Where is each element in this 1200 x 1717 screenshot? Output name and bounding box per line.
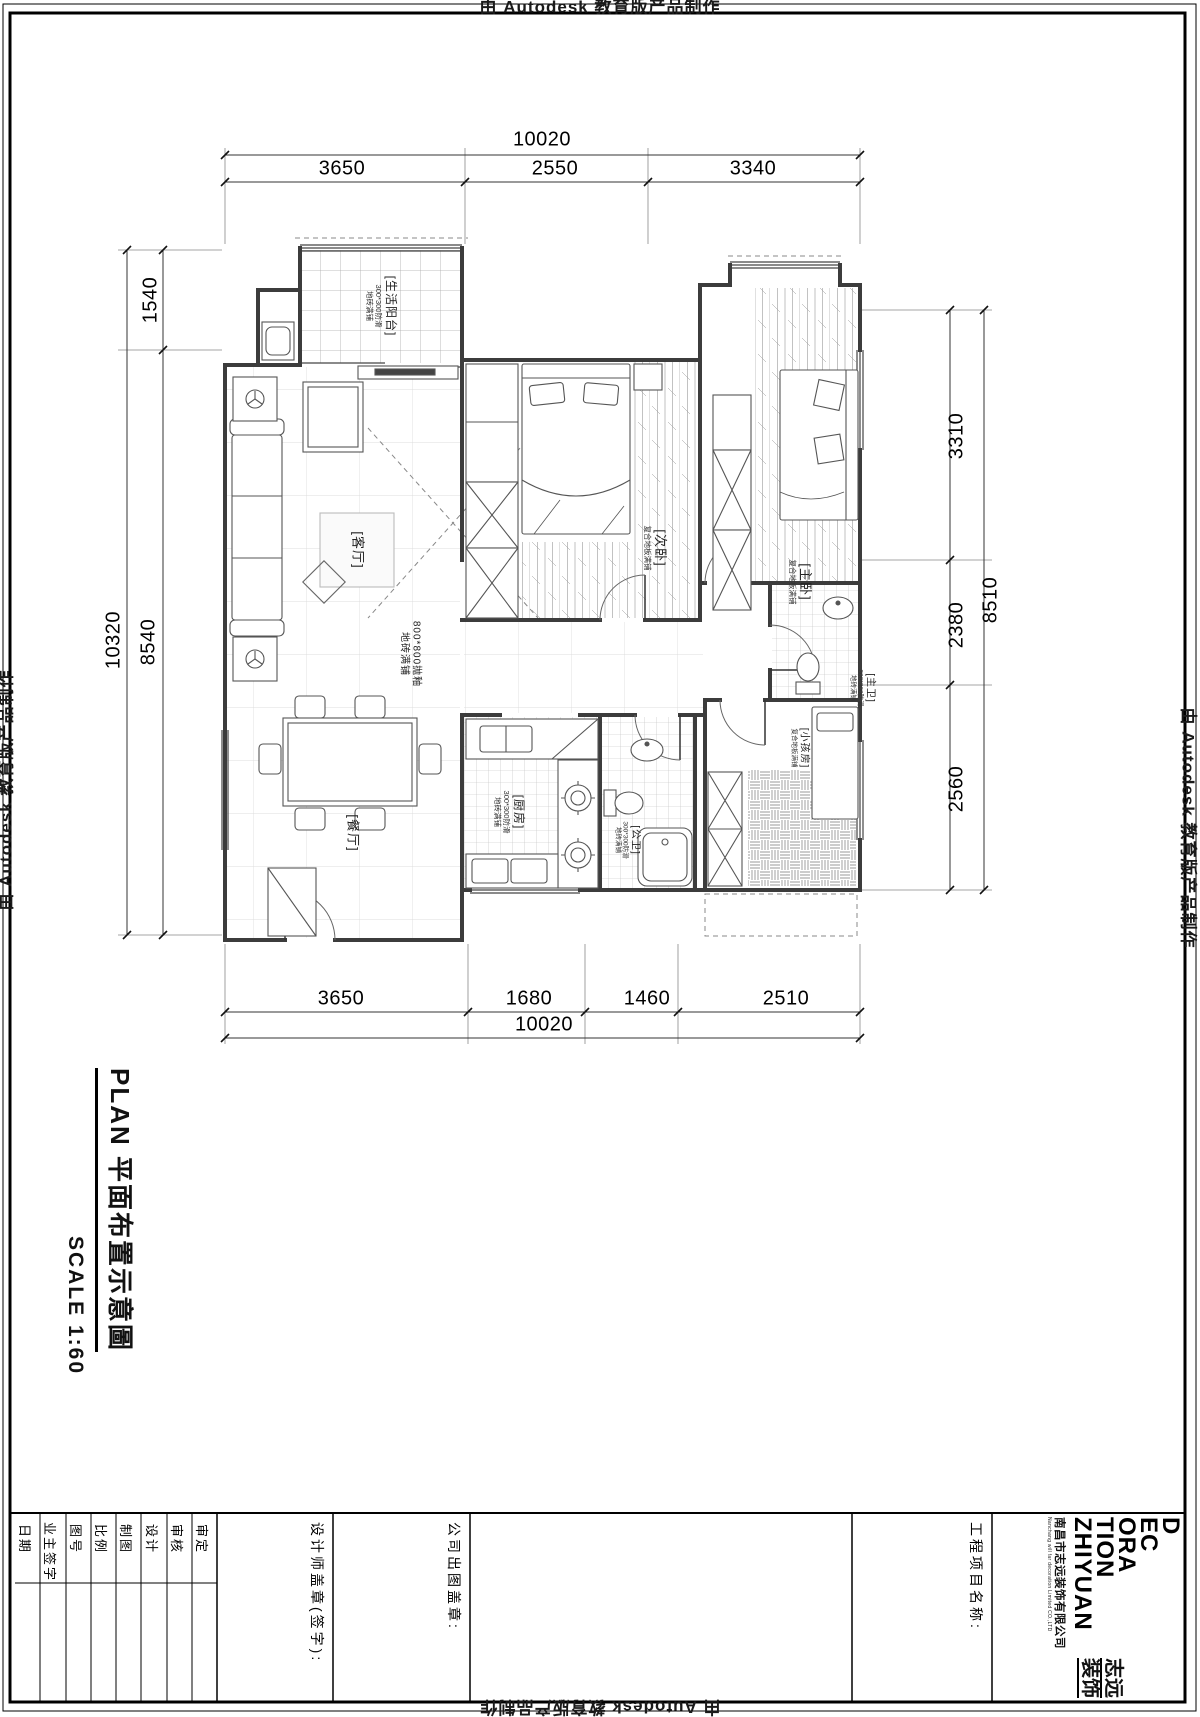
watermark-left: 由 Autodesk 教育版产品制作 — [0, 670, 17, 911]
sheet-title: PLAN 平面布置示意圖 SCALE 1:60 — [63, 1068, 140, 1388]
watermark-top: 由 Autodesk 教育版产品制作 — [480, 0, 721, 18]
field-ratio: 比例 — [92, 1524, 111, 1554]
dining-cabinet — [268, 868, 316, 936]
room-label-bed2: [次卧] 复合地板满铺 — [643, 526, 667, 571]
dim-top-seg3: 3340 — [730, 158, 777, 181]
dim-left-seg1: 1540 — [140, 277, 163, 324]
room-name: [厨房] — [511, 795, 525, 830]
watermark-right: 由 Autodesk 教育版产品制作 — [1178, 708, 1200, 949]
room-label-pubbath: [公卫] 300*300防滑 地砖满铺 — [613, 821, 640, 858]
watermark-bottom: 由 Autodesk 教育版产品制作 — [480, 1697, 721, 1717]
room-name: [小孩房] — [798, 728, 810, 769]
room-label-master: [主卧] 复合地板满铺 — [788, 560, 812, 605]
project-name-label: 工程项目名称: — [966, 1522, 986, 1631]
floor-spec: 地砖满铺 — [613, 827, 621, 853]
designer-stamp-label: 设计师盖章(签字): — [307, 1522, 327, 1663]
bed2 — [522, 364, 630, 534]
floor-spec: 300*300防滑 — [374, 285, 383, 328]
dim-bottom-overall: 10020 — [515, 1014, 573, 1037]
coffee-table — [303, 382, 363, 452]
room-label-kids: [小孩房] 复合地板满铺 — [790, 728, 809, 769]
logo-cn: 志远 装饰 — [1077, 1658, 1123, 1698]
floor-spec: 地砖满铺 — [365, 291, 374, 321]
dim-bottom-seg2: 1680 — [506, 988, 553, 1011]
dim-bottom-seg1: 3650 — [318, 988, 365, 1011]
floor-spec: 地砖满铺 — [399, 632, 411, 676]
dim-right-seg2: 2380 — [946, 602, 969, 649]
kids-bed — [812, 707, 858, 819]
dim-right-seg1: 3310 — [946, 413, 969, 460]
sofa — [230, 419, 284, 636]
hall-floor-note: 800*800抛釉 地砖满铺 — [399, 621, 422, 687]
dim-top-seg2: 2550 — [532, 158, 579, 181]
field-drawing-no: 图号 — [67, 1524, 86, 1554]
bed2-wardrobe — [466, 364, 518, 618]
room-name: [次卧] — [652, 529, 667, 566]
room-name: [公卫] — [629, 825, 641, 855]
floor-spec: 300*300防滑 — [856, 669, 864, 706]
logo-line: ZHIYUAN — [1071, 1517, 1093, 1631]
room-name: [主卫] — [864, 673, 876, 703]
room-label-dining: [餐厅] — [345, 814, 360, 851]
dim-left-seg2: 8540 — [138, 619, 161, 666]
floor-patterns — [227, 250, 858, 938]
floor-spec: 300*300防滑 — [621, 821, 629, 858]
balcony-basin — [262, 322, 294, 360]
company-logo: D EC ORA TION ZHIYUAN 志远 装饰 南昌市志远装饰有限公司 … — [992, 1513, 1183, 1702]
logo-cn-line: 装饰 — [1077, 1658, 1100, 1698]
dim-bottom-seg4: 2510 — [763, 988, 810, 1011]
company-stamp-label: 公司出图盖章: — [444, 1522, 464, 1631]
room-name: [生活阳台] — [383, 276, 397, 337]
room-name: [客厅] — [350, 531, 365, 568]
logo-line: D — [1159, 1517, 1181, 1631]
floor-spec: 复合地板满铺 — [643, 526, 652, 571]
logo-line: EC — [1137, 1517, 1159, 1631]
field-drafted: 制图 — [117, 1524, 136, 1554]
drawing-sheet: 10020 3650 2550 3340 3650 1680 1460 2510… — [0, 0, 1200, 1717]
dim-left-overall: 10320 — [103, 611, 126, 669]
dim-top-seg1: 3650 — [319, 158, 366, 181]
floor-spec: 800*800抛釉 — [410, 621, 422, 687]
floor-spec: 地砖满铺 — [493, 797, 502, 827]
logo-line: TION — [1093, 1517, 1115, 1631]
tv-cabinet — [358, 366, 458, 379]
logo-en: D EC ORA TION ZHIYUAN — [1071, 1517, 1181, 1631]
floor-spec: 300*300防滑 — [502, 791, 511, 834]
floor-spec: 复合地板满铺 — [788, 560, 797, 605]
dim-right-overall: 8510 — [980, 577, 1003, 624]
master-bed — [780, 370, 858, 520]
master-wardrobe — [713, 395, 751, 610]
room-label-balcony: [生活阳台] 300*300防滑 地砖满铺 — [365, 276, 397, 337]
field-checked: 审核 — [168, 1524, 187, 1554]
company-name-cn: 南昌市志远装饰有限公司 — [1052, 1517, 1068, 1698]
floor-spec: 复合地板满铺 — [790, 729, 798, 768]
room-label-living: [客厅] — [350, 531, 365, 568]
room-name: [主卧] — [797, 563, 812, 600]
room-name: [餐厅] — [345, 814, 360, 851]
field-owner-sign: 业主签字 — [41, 1522, 60, 1582]
sheet-title-text: PLAN 平面布置示意圖 — [95, 1068, 140, 1352]
room-label-kitchen: [厨房] 300*300防滑 地砖满铺 — [493, 791, 525, 834]
company-name-en: Nanchang will far decoration Limited CO.… — [1046, 1517, 1052, 1698]
kids-cabinet — [708, 772, 742, 886]
logo-cn-line: 志远 — [1100, 1658, 1123, 1698]
sheet-scale-text: SCALE 1:60 — [63, 1236, 87, 1388]
dim-bottom-seg3: 1460 — [624, 988, 671, 1011]
logo-line: ORA — [1115, 1517, 1137, 1631]
dim-right-seg3: 2560 — [946, 766, 969, 813]
field-approved: 审定 — [193, 1524, 212, 1554]
room-label-masterbath: [主卫] 300*300防滑 地砖满铺 — [848, 669, 875, 706]
field-date: 日期 — [16, 1524, 35, 1554]
floor-spec: 地砖满铺 — [848, 675, 856, 701]
bed2-nightstand — [634, 364, 662, 390]
field-designed: 设计 — [143, 1524, 162, 1554]
dim-top-overall: 10020 — [513, 129, 571, 152]
